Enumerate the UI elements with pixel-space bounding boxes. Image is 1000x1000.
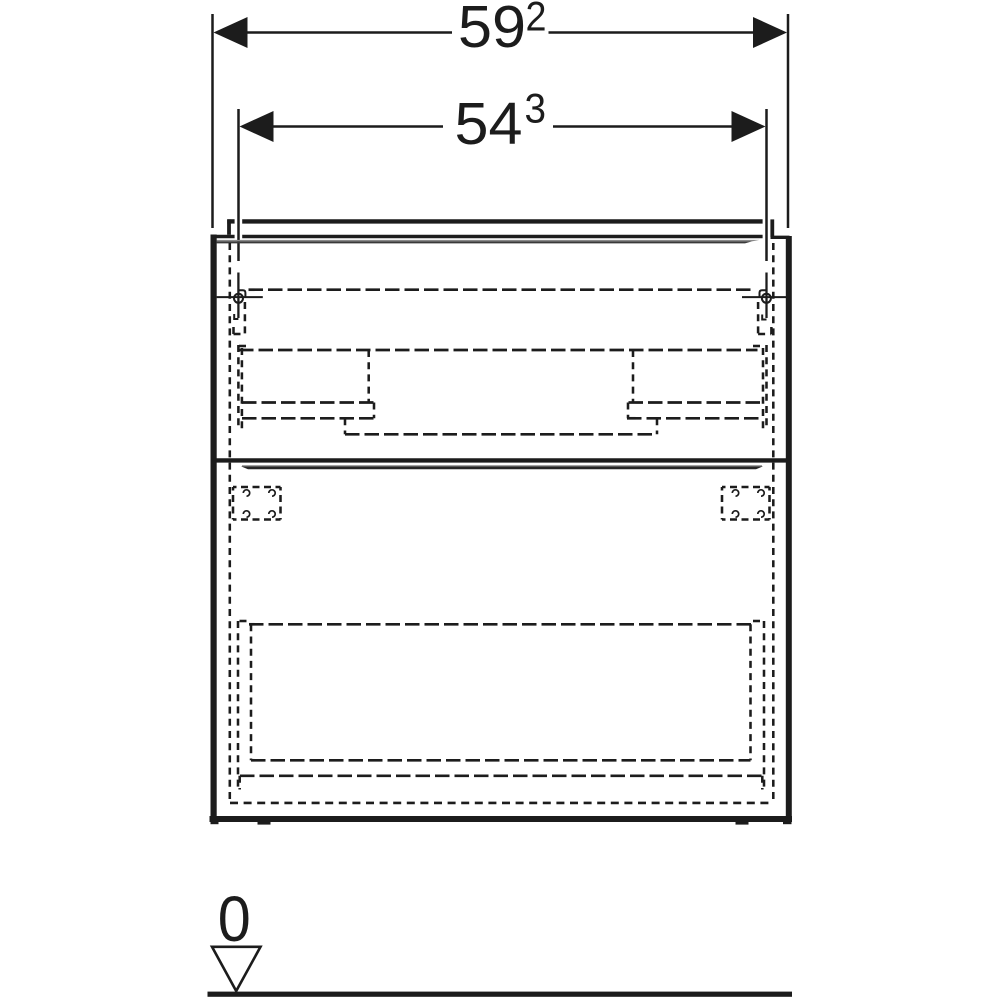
svg-text:2: 2 [526, 0, 547, 40]
svg-text:54: 54 [455, 90, 523, 157]
svg-text:0: 0 [218, 883, 251, 955]
svg-text:59: 59 [458, 0, 526, 60]
svg-text:3: 3 [525, 85, 547, 132]
